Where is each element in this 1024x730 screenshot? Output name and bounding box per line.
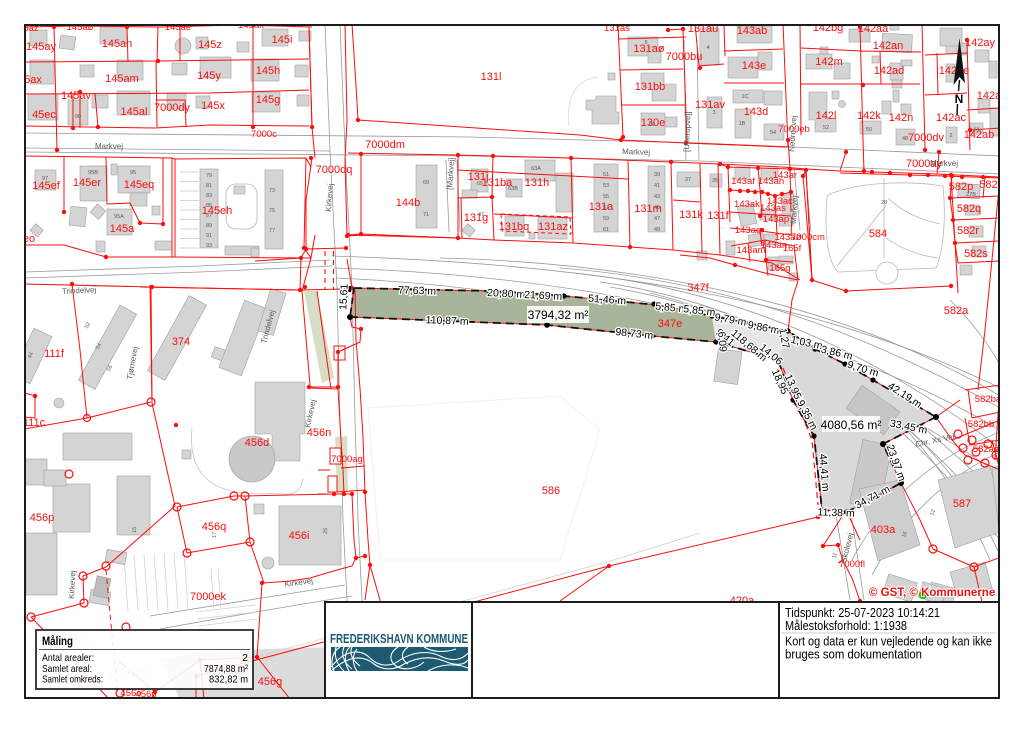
svg-text:145h: 145h [256,65,280,77]
svg-text:2: 2 [949,133,952,139]
svg-text:142m: 142m [815,56,843,68]
svg-text:142n: 142n [889,112,913,124]
svg-text:37: 37 [685,177,691,183]
svg-text:25: 25 [323,528,330,535]
svg-text:131l: 131l [481,71,502,83]
svg-text:59: 59 [603,216,609,222]
svg-text:403a: 403a [871,524,896,536]
svg-text:145z: 145z [198,39,222,51]
svg-text:63A: 63A [531,166,541,172]
svg-text:111f: 111f [44,348,65,360]
svg-text:85: 85 [206,203,212,209]
svg-text:77: 77 [269,228,275,234]
svg-text:45ec: 45ec [32,109,56,121]
svg-text:584: 584 [869,228,887,240]
svg-text:131bb: 131bb [635,81,666,93]
svg-text:145an: 145an [102,38,133,50]
svg-text:131aø: 131aø [633,43,664,55]
svg-text:131az: 131az [538,221,568,233]
svg-text:143d: 143d [744,106,768,118]
svg-text:165f: 165f [783,243,802,254]
svg-text:47: 47 [654,216,660,222]
svg-text:93: 93 [206,243,212,249]
svg-text:131av: 131av [695,99,725,111]
svg-text:71: 71 [423,212,429,218]
svg-text:bruges som dokumentation: bruges som dokumentation [785,647,922,662]
svg-text:456p: 456p [30,512,54,524]
svg-text:95B: 95B [88,170,98,176]
svg-text:27B: 27B [966,192,976,198]
svg-text:456i: 456i [289,530,310,542]
svg-text:143aq: 143aq [735,225,761,236]
svg-text:5: 5 [644,40,647,46]
svg-text:6,09: 6,09 [715,331,729,353]
svg-text:7000cm: 7000cm [791,232,825,243]
svg-text:143e: 143e [742,60,766,72]
svg-text:97: 97 [42,176,48,182]
svg-text:144b: 144b [396,197,420,209]
svg-text:20,80 m: 20,80 m [487,287,526,301]
svg-text:83: 83 [206,193,212,199]
svg-text:582bb: 582bb [968,419,994,430]
svg-text:456q: 456q [202,521,226,533]
svg-text:110,87 m: 110,87 m [425,314,469,328]
svg-text:95: 95 [130,170,136,176]
svg-text:53: 53 [603,183,609,189]
svg-text:1C: 1C [741,94,748,100]
svg-text:145av: 145av [61,90,91,102]
svg-text:145eq: 145eq [124,179,155,191]
svg-text:11,38 m: 11,38 m [817,506,855,519]
svg-text:48: 48 [902,136,908,142]
svg-text:7000ag: 7000ag [331,454,363,465]
svg-text:143ah: 143ah [758,176,784,187]
svg-text:57: 57 [603,205,609,211]
svg-text:347e: 347e [658,318,682,330]
svg-text:43: 43 [654,194,660,200]
svg-text:131a: 131a [589,201,614,213]
svg-text:95A: 95A [114,214,124,220]
svg-text:63B: 63B [508,186,518,192]
svg-text:Målestoksforhold: 1:1938: Målestoksforhold: 1:1938 [785,618,907,633]
svg-text:41: 41 [654,183,660,189]
svg-text:87: 87 [206,213,212,219]
svg-text:582a: 582a [944,305,969,317]
svg-text:131g: 131g [464,212,488,224]
svg-text:77,63 m: 77,63 m [398,284,437,297]
svg-text:456d: 456d [245,437,269,449]
svg-text:143ak: 143ak [734,199,760,210]
svg-text:347f: 347f [687,282,709,294]
svg-text:142ac: 142ac [936,112,966,124]
svg-text:111c: 111c [23,417,46,429]
svg-text:143af: 143af [731,176,755,187]
svg-text:582t: 582t [979,179,1000,191]
svg-text:7000dq: 7000dq [316,164,353,176]
svg-text:35: 35 [712,178,718,184]
svg-text:145g: 145g [256,94,280,106]
svg-text:165g: 165g [769,263,790,274]
svg-text:145ay: 145ay [26,41,56,53]
svg-text:143as: 143as [760,203,786,214]
svg-text:142ad: 142ad [874,65,905,77]
svg-text:62: 62 [649,122,655,128]
svg-text:582q: 582q [957,203,981,215]
svg-text:[Ulterupvej]: [Ulterupvej] [682,111,692,152]
svg-text:832,82 m: 832,82 m [209,674,248,686]
svg-text:© GST, © Kommunerne: © GST, © Kommunerne [869,587,995,599]
svg-text:142an: 142an [873,40,904,52]
svg-text:45: 45 [654,205,660,211]
svg-text:FREDERIKSHAVN KOMMUNE: FREDERIKSHAVN KOMMUNE [330,632,468,646]
svg-text:Samlet omkreds:: Samlet omkreds: [42,674,103,686]
svg-text:131h: 131h [525,177,549,189]
svg-text:145y: 145y [197,70,221,82]
svg-text:65: 65 [477,181,483,187]
svg-text:75: 75 [269,208,275,214]
svg-text:7000ek: 7000ek [190,591,227,603]
svg-text:Markvej: Markvej [930,159,958,168]
svg-text:7000dv: 7000dv [908,132,945,144]
svg-text:4: 4 [706,45,709,51]
svg-text:89: 89 [206,223,212,229]
svg-text:3794,32 m²: 3794,32 m² [528,308,589,322]
svg-text:143ab: 143ab [737,25,768,37]
svg-text:49: 49 [654,227,660,233]
svg-text:7000bu: 7000bu [666,51,703,63]
svg-text:54: 54 [770,130,776,136]
svg-text:61: 61 [603,227,609,233]
svg-text:50: 50 [866,127,872,133]
svg-text:143am: 143am [736,245,765,256]
svg-text:142ay: 142ay [965,37,995,49]
svg-text:55: 55 [603,194,609,200]
svg-text:47: 47 [478,212,484,218]
svg-text:39: 39 [654,172,660,178]
svg-text:91: 91 [206,233,212,239]
svg-text:51: 51 [603,172,609,178]
svg-text:90: 90 [75,114,81,120]
svg-text:Markvej: Markvej [95,142,123,151]
svg-text:143ap: 143ap [763,214,789,225]
svg-text:131f: 131f [707,210,729,222]
svg-text:145a: 145a [110,223,135,235]
svg-text:145am: 145am [105,73,139,85]
svg-text:15,61: 15,61 [337,283,350,310]
svg-text:1B: 1B [739,121,746,127]
svg-text:44: 44 [973,127,979,133]
svg-text:142l: 142l [816,110,837,122]
svg-text:586: 586 [542,485,560,497]
svg-text:145x: 145x [201,100,225,112]
svg-text:21,69 m: 21,69 m [524,289,563,303]
svg-text:Trindelvej: Trindelvej [62,285,97,296]
svg-text:582r: 582r [957,225,979,237]
svg-text:15: 15 [132,527,139,534]
svg-text:7000dm: 7000dm [365,139,405,151]
svg-text:4080,56 m²: 4080,56 m² [821,418,882,432]
svg-text:7000dy: 7000dy [154,102,191,114]
svg-text:582s: 582s [964,248,988,260]
svg-text:374: 374 [172,336,190,348]
svg-text:52: 52 [823,125,829,131]
svg-text:142k: 142k [857,110,881,122]
svg-text:Kirkevej: Kirkevej [67,570,77,599]
svg-text:28: 28 [881,200,887,206]
svg-text:131bq: 131bq [499,221,530,233]
svg-text:7000c: 7000c [251,129,277,140]
svg-text:69: 69 [423,180,429,186]
svg-text:Markvej: Markvej [789,195,799,224]
svg-text:73: 73 [269,188,275,194]
svg-text:145i: 145i [272,34,293,46]
svg-text:582aa: 582aa [973,444,1000,455]
svg-text:17: 17 [212,532,219,539]
svg-text:81: 81 [206,183,212,189]
svg-text:142ae: 142ae [939,65,970,77]
svg-text:456g: 456g [258,676,282,688]
svg-text:582ba: 582ba [975,394,1002,405]
svg-text:131k: 131k [679,209,703,221]
svg-text:79: 79 [206,173,212,179]
svg-text:N: N [955,92,964,106]
svg-text:5ax: 5ax [24,74,42,86]
svg-text:145al: 145al [121,106,148,118]
svg-text:145er: 145er [73,177,101,189]
svg-text:3: 3 [712,110,715,116]
svg-text:587: 587 [953,498,971,510]
svg-text:Markvej: Markvej [622,147,651,157]
svg-text:Måling: Måling [42,636,73,648]
